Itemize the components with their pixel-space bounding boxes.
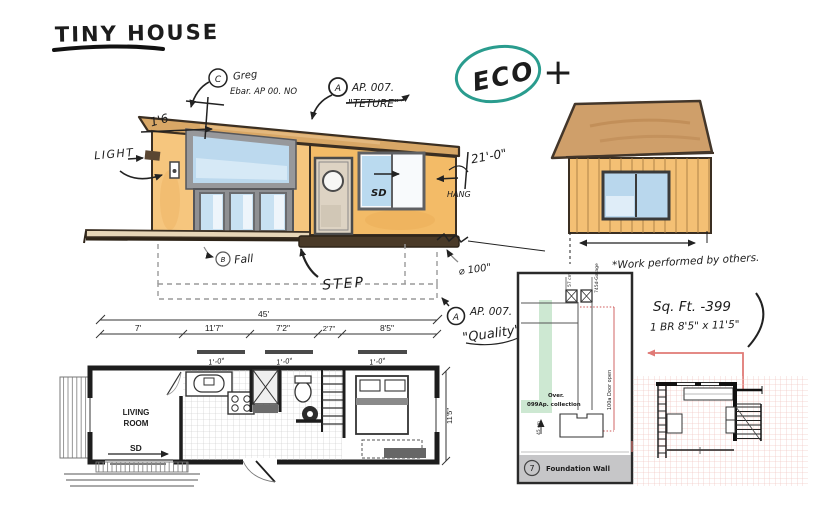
sketch-page: TINY HOUSE ECO + [0,0,826,515]
light-label: LIGHT [94,146,135,162]
fall-label: Fall [234,252,254,267]
left-deck [60,377,88,458]
sliding-window-label: SD [371,188,387,199]
win-note-1: 1'-0" [208,357,226,367]
dim-seg-4: 2'7" [323,324,336,333]
quality-word: "Quality" [462,323,522,346]
dim-seg-1: 7' [135,323,142,333]
page-title: TINY HOUSE [55,20,220,47]
dim-height-label: 11'5" [445,408,454,424]
bed-blanket-band [356,398,408,405]
callout-number: 7 [529,464,534,473]
page-title-group: TINY HOUSE [54,20,219,50]
specs-bracket [748,293,763,347]
dim-seg-2: 11'7" [205,323,223,333]
detail-border [518,273,632,483]
note-a-code: AP. 007. [351,82,394,94]
note-a-letter: A [334,84,341,94]
loft-small-rect [667,414,682,433]
leader-line [468,241,545,251]
foundation-detail: 57 cm 745d-Garage 100a Door open Over. 0… [518,263,632,483]
light-arrow [128,158,143,159]
pillow-2 [385,380,405,391]
fall-arrow [204,247,213,257]
room-label-2: ROOM [124,419,149,428]
specs: Sq. Ft. -399 1 BR 8'5" x 11'5" [648,293,763,389]
win-note-2: 1'-0" [276,357,294,367]
glass-glare-3 [274,195,284,229]
pillow-1 [360,380,380,391]
quality-letter: A [452,313,459,323]
toilet-tank [295,376,311,383]
step-label: STEP [322,275,366,294]
porch-light-bulb [173,169,177,173]
quality-code: AP. 007. [469,306,512,318]
dim-seg-3: 7'2" [276,323,290,333]
quality-arrow-up [442,298,449,306]
quality-note: A AP. 007. "Quality" [442,298,527,346]
room-label-1: LIVING [123,408,150,417]
grid-plan [632,376,808,486]
step-slab [299,236,459,247]
rear-window-glare [606,196,634,216]
title-underline [54,46,163,50]
callout-label: Foundation Wall [546,465,610,473]
dim-right-label: 21'-0" [470,146,508,166]
dim-seg-5: 8'5" [380,323,394,333]
detail-cm45: 45 cm [536,421,542,435]
sketch-canvas: TINY HOUSE ECO + [0,0,826,515]
detail-door-open: 100a Door open [607,370,613,410]
note-c-code: Ebar. AP 00. NO [230,87,297,97]
detail-garage: 745d-Garage [594,263,600,293]
bath-sink-drain [307,411,313,417]
loft-box-1 [726,407,735,420]
note-a-arrow [312,95,332,119]
dim-total-label: 45' [258,309,269,319]
dim-phi-label: ⌀ 100" [458,262,492,277]
loft-box-2 [726,420,735,433]
glass-glare-1 [213,195,222,229]
porch-boards [96,462,188,472]
rear-roof [552,101,712,158]
porch-edge [84,231,86,243]
wall-wash [160,170,180,230]
toilet-icon [295,382,311,402]
door-smudge [321,205,341,227]
plan-sd-label: SD [130,443,142,453]
bed-label: 1 BR 8'5" x 11'5" [650,319,740,334]
sconce-icon [145,150,161,161]
eco-badge: ECO + [452,40,573,108]
detail-cm57: 57 cm [567,273,573,287]
detail-over: Over. [548,393,564,399]
hang-label: HANG [447,190,471,199]
rear-elevation: *Work performed by others. [552,101,760,272]
note-c-letter: C [215,75,222,85]
win-note-3: 1'-0" [369,357,387,367]
porch-slab [86,230,310,238]
wall-wash-2 [365,210,435,230]
closet-dark-bar [384,448,426,458]
detail-collection: 099Ap. collection [527,402,581,408]
steps-lines [64,474,200,486]
note-b-letter: B [221,256,226,264]
step-arrow [301,249,318,277]
porthole-window [323,171,343,191]
hang-arrow [437,178,458,179]
texture-tick [401,95,409,101]
utility-dark-bar [253,405,278,413]
rear-note: *Work performed by others. [612,252,760,272]
foundation-block [560,414,603,437]
sqft-label: Sq. Ft. -399 [653,299,731,315]
glass-glare-2 [243,195,252,229]
projection-dashes [158,244,437,299]
note-c-name: Greg [233,69,258,82]
phi-arrow [447,250,458,262]
porch-shadow [86,239,310,240]
plus-sign: + [543,52,573,93]
floor-plan: 45' 7' 11'7" 7'2" 2'7" 8'5" 1'-0" 1'-0" … [60,309,454,486]
